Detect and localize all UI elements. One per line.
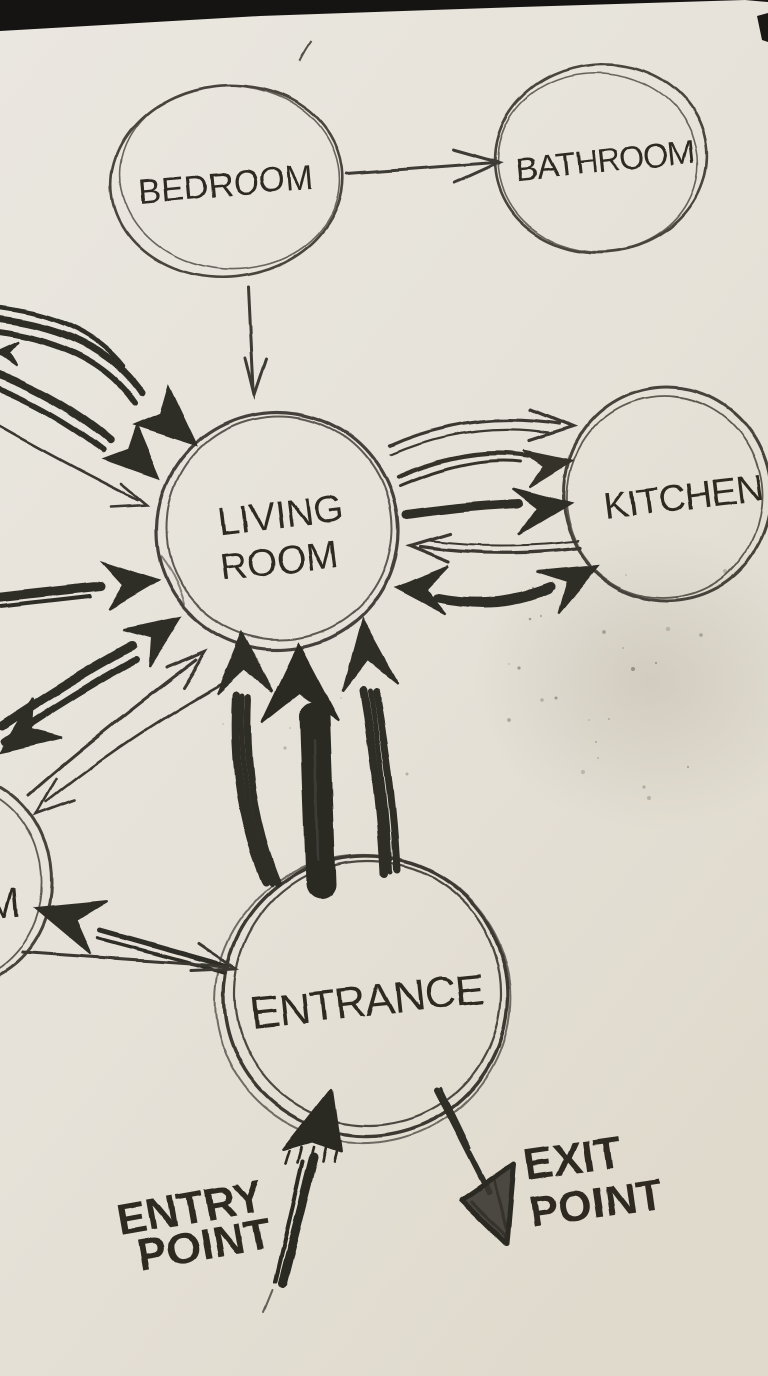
svg-text:M: M	[0, 879, 23, 929]
